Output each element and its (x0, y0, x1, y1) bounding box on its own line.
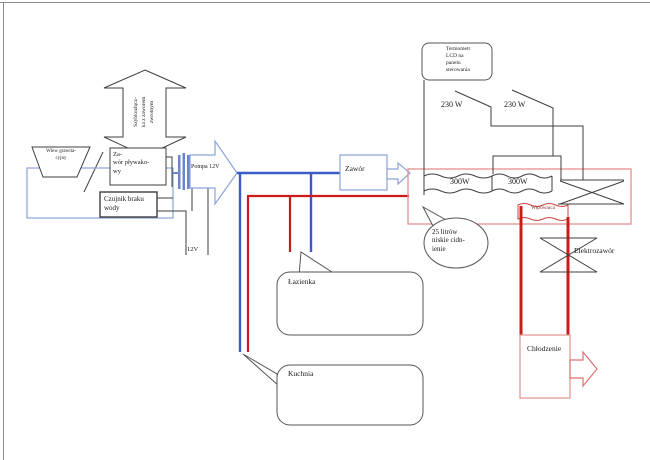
supply-12v-label: 12V (187, 246, 198, 253)
kitchen-label: Kuchnia (288, 370, 313, 379)
pump-coupling-bar (183, 153, 186, 190)
pump-coupling-bar (187, 155, 190, 189)
thermometer-label: Termometr LCD na panelu sterowania (446, 46, 470, 75)
float-valve-label: Za- wór pływako- wy (113, 151, 165, 176)
quick-coupler-label: Szybkozłącz- ka z zaworem zwrotnym (125, 91, 165, 133)
pump-label: Pompa 12V (191, 164, 220, 171)
kitchen-callout-tail (243, 354, 279, 386)
cooling-out-arrow (570, 352, 597, 386)
bathroom-label: Łazienka (288, 278, 315, 287)
valve-label: Zawór (345, 165, 365, 174)
heater-300w-label-2: 300W (508, 177, 528, 186)
water-sensor-label: Czujnik braku wody (104, 195, 156, 213)
electrovalve-label: Elektrozawór (574, 247, 614, 256)
diagram-canvas: Wlew grawita- cyjny Szybkozłącz- ka z za… (0, 0, 650, 460)
heater-300w-label-1: 300W (450, 177, 470, 186)
pump-coupling-bar (178, 155, 181, 189)
valve-outlet-arrow (387, 163, 410, 184)
cooling-label: Chłodzenie (527, 345, 561, 354)
coil-label: Węzownica (518, 206, 568, 212)
power-230w-label-1: 230 W (441, 100, 462, 109)
power-230w-label-2: 230 W (504, 100, 525, 109)
diagram-shapes (0, 0, 650, 460)
heat-exchanger-symbol (558, 180, 624, 204)
tank-capacity-label: 25 litrów niskie cidn- ienie (432, 228, 465, 253)
float-valve-wire (166, 157, 172, 187)
pump-arrow (190, 141, 237, 204)
gravity-fill-label: Wlew grawita- cyjny (35, 149, 87, 162)
